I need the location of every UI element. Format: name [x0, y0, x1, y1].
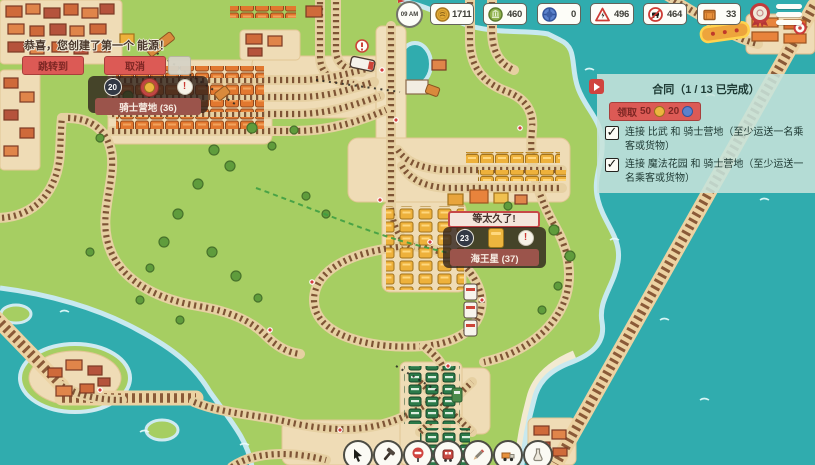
objective-checkbox[interactable]: ✓: [605, 158, 619, 172]
clock-time: 09 AM: [401, 12, 418, 18]
contract-objective: ✓ 连接 魔法花园 和 骑士营地（至少运送一名乘客或货物）: [605, 158, 807, 185]
objective-text: 连接 魔法花园 和 骑士营地（至少运送一名乘客或货物）: [625, 158, 807, 185]
resource-electricity[interactable]: 496: [590, 3, 634, 25]
signal-icon: [409, 446, 427, 464]
tool-edit-button[interactable]: [463, 440, 493, 465]
award-ribbon-icon: [747, 2, 773, 28]
alert-icon: !: [177, 79, 193, 95]
resource-electricity-value: 496: [612, 9, 629, 20]
resource-crates-value: 33: [719, 9, 736, 20]
clock-button[interactable]: 09 AM: [396, 1, 423, 28]
resource-crates[interactable]: 33: [697, 3, 741, 25]
tool-build-button[interactable]: [373, 440, 403, 465]
contract-objective: ✓ 连接 比武 和 骑士营地（至少运送一名乘客或货物）: [605, 126, 807, 153]
cargo-crate-icon: [488, 228, 504, 248]
station-badge: 20: [104, 78, 122, 96]
notification-message: 恭喜，您创建了第一个 能源！: [24, 37, 170, 53]
resource-blue-token[interactable]: 0: [537, 3, 581, 25]
resource-gold-value: 1711: [452, 9, 471, 20]
cursor-icon: [349, 446, 367, 464]
resource-green-token[interactable]: 460: [483, 3, 527, 25]
objective-text: 连接 比武 和 骑士营地（至少运送一名乘客或货物）: [625, 126, 807, 153]
station-panel-knight-camp[interactable]: 20 ! 骑士营地 (36): [88, 76, 208, 113]
crate-icon: [702, 7, 717, 22]
tool-industry-button[interactable]: [523, 440, 553, 465]
tool-signal-button[interactable]: [403, 440, 433, 465]
resource-train-limit[interactable]: 464: [643, 3, 687, 25]
menu-bar: [776, 12, 802, 17]
station-icons: 23 !: [443, 227, 546, 249]
cancel-button[interactable]: 取消: [104, 56, 166, 75]
jump-to-button[interactable]: 跳转到: [22, 56, 84, 75]
claim-gold-amount: 50: [640, 106, 651, 117]
train-limit-icon: [648, 7, 663, 22]
flag-icon: [395, 0, 407, 9]
menu-bar: [776, 20, 802, 25]
resource-green-value: 460: [505, 9, 522, 20]
station-warning-banner: 等太久了!: [448, 211, 540, 228]
alert-icon: !: [518, 230, 534, 246]
truck-icon: [499, 446, 517, 464]
resource-gold[interactable]: 1711: [430, 3, 474, 25]
tool-train-button[interactable]: [433, 440, 463, 465]
claim-button[interactable]: 领取 50 20: [609, 102, 701, 121]
train-icon: [439, 446, 457, 464]
contract-tab-arrow-icon[interactable]: [589, 79, 604, 94]
game-screen: 09 AM 1711 460 0 496: [0, 0, 815, 465]
station-badge: 23: [456, 229, 474, 247]
map-alert-marker: [356, 40, 368, 52]
station-name: 海王星 (37): [450, 249, 539, 266]
notification-panel-edge: [168, 56, 191, 75]
resource-blue-value: 0: [559, 9, 576, 20]
tool-vehicle-button[interactable]: [493, 440, 523, 465]
pencil-icon: [469, 446, 487, 464]
electricity-warning-icon: [595, 7, 610, 22]
claim-blue-amount: 20: [668, 106, 679, 117]
tool-select-button[interactable]: [343, 440, 373, 465]
menu-button[interactable]: [776, 4, 802, 25]
contract-title: 合同（1 / 13 已完成）: [605, 81, 807, 97]
blue-token-icon: [542, 7, 557, 22]
hammer-icon: [379, 446, 397, 464]
resource-train-limit-value: 464: [665, 9, 682, 20]
station-icons: 20 !: [88, 76, 208, 98]
gold-coin-icon: [435, 7, 450, 22]
contract-panel: 合同（1 / 13 已完成） 领取 50 20 ✓ 连接 比武 和 骑士营地（至…: [597, 74, 815, 193]
green-token-icon: [488, 7, 503, 22]
station-panel-neptune[interactable]: 23 ! 海王星 (37): [443, 227, 546, 268]
menu-bar: [776, 4, 802, 9]
blue-token-icon: [682, 106, 693, 117]
claim-label: 领取: [617, 104, 637, 119]
station-name: 骑士营地 (36): [95, 98, 201, 115]
objective-checkbox[interactable]: ✓: [605, 126, 619, 140]
gold-coin-icon: [654, 106, 665, 117]
flask-icon: [529, 446, 547, 464]
medal-icon: [140, 78, 159, 97]
achievement-button[interactable]: [747, 2, 773, 28]
